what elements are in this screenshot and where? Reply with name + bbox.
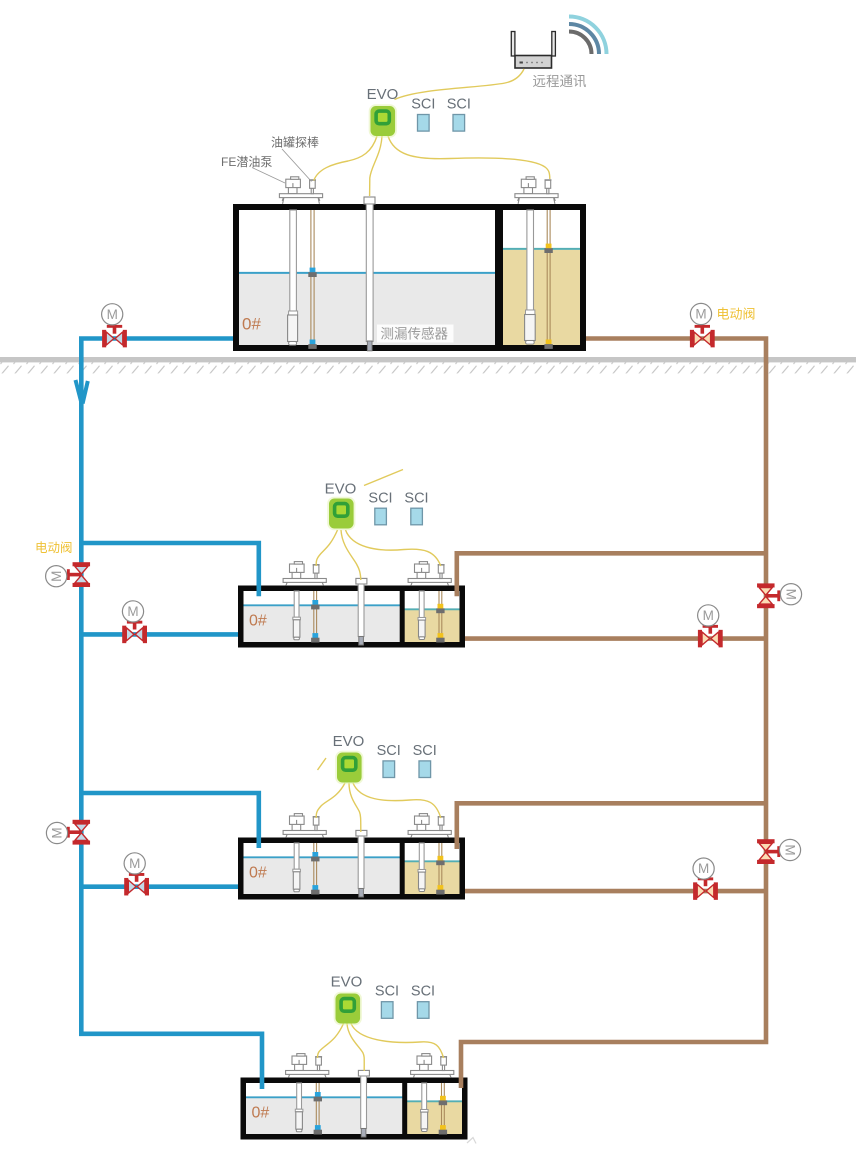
svg-text:电动阀: 电动阀 xyxy=(35,541,73,555)
svg-text:FE潜油泵: FE潜油泵 xyxy=(221,155,272,169)
svg-text:SCI: SCI xyxy=(368,491,392,507)
svg-text:油罐探棒: 油罐探棒 xyxy=(271,136,319,150)
svg-text:远程通讯: 远程通讯 xyxy=(533,74,587,89)
svg-text:EVO: EVO xyxy=(333,733,365,750)
svg-text:SCI: SCI xyxy=(413,743,437,759)
svg-text:0#: 0# xyxy=(242,315,261,334)
svg-text:SCI: SCI xyxy=(411,97,435,113)
svg-text:SCI: SCI xyxy=(377,743,401,759)
svg-text:EVO: EVO xyxy=(331,974,363,991)
svg-text:SCI: SCI xyxy=(375,984,399,1000)
svg-text:EVO: EVO xyxy=(325,481,357,498)
svg-text:电动阀: 电动阀 xyxy=(717,307,756,322)
svg-text:测漏传感器: 测漏传感器 xyxy=(381,326,449,342)
svg-text:EVO: EVO xyxy=(367,86,399,103)
svg-text:SCI: SCI xyxy=(404,491,428,507)
svg-text:SCI: SCI xyxy=(447,97,471,113)
svg-text:SCI: SCI xyxy=(411,984,435,1000)
